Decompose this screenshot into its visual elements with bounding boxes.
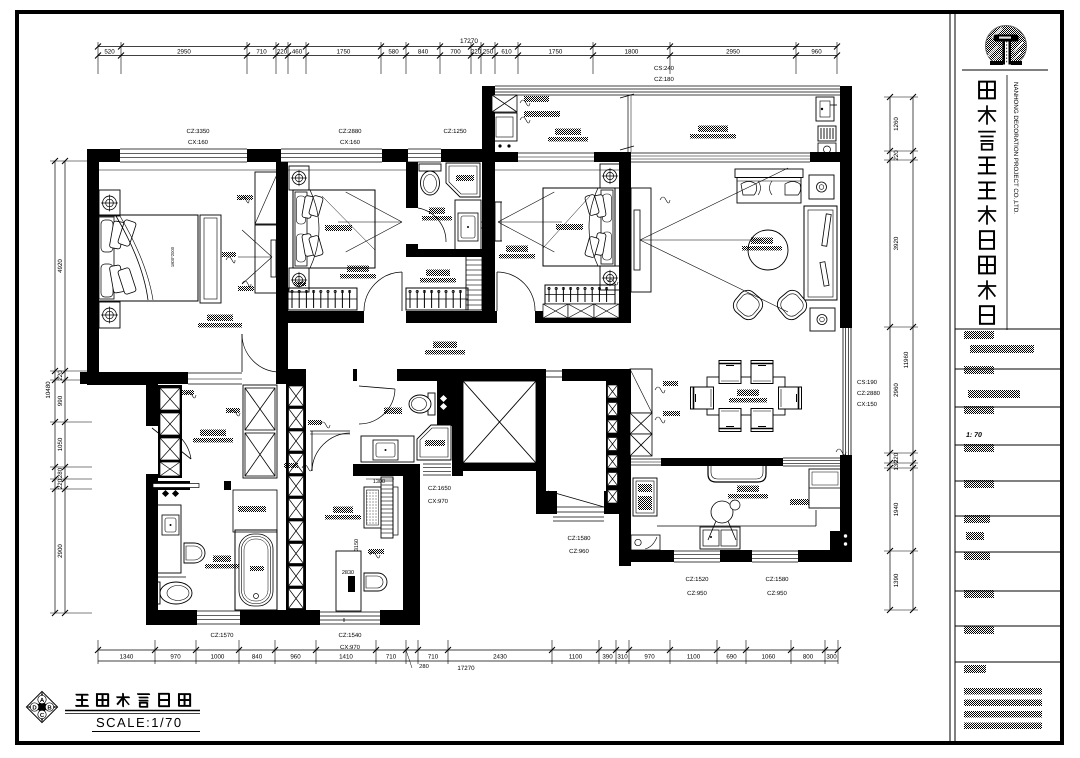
svg-text:220: 220 — [893, 150, 900, 161]
svg-text:CZ:960: CZ:960 — [569, 548, 589, 555]
svg-text:1390: 1390 — [893, 573, 900, 587]
svg-text:2430: 2430 — [493, 654, 507, 661]
svg-text:1800: 1800 — [625, 49, 639, 56]
svg-text:1940: 1940 — [893, 502, 900, 516]
svg-text:CZ:1540: CZ:1540 — [338, 632, 362, 639]
svg-text:CZ:950: CZ:950 — [767, 590, 787, 597]
svg-text:840: 840 — [252, 654, 263, 661]
svg-text:1: 70: 1: 70 — [966, 432, 982, 439]
svg-text:1000: 1000 — [211, 654, 225, 661]
svg-text:1100: 1100 — [569, 654, 583, 661]
svg-text:1410: 1410 — [339, 654, 353, 661]
svg-text:CZ:1250: CZ:1250 — [443, 128, 467, 135]
svg-text:CZ:1570: CZ:1570 — [210, 632, 234, 639]
svg-text:700: 700 — [450, 49, 461, 56]
svg-text:CZ:3350: CZ:3350 — [186, 128, 210, 135]
svg-text:310: 310 — [617, 654, 628, 661]
svg-text:1750: 1750 — [337, 49, 351, 56]
svg-text:CZ:180: CZ:180 — [654, 76, 674, 83]
svg-text:CX:150: CX:150 — [857, 401, 878, 408]
svg-text:520: 520 — [104, 49, 115, 56]
svg-text:CZ:1650: CZ:1650 — [428, 485, 452, 492]
svg-text:2960: 2960 — [893, 383, 900, 397]
svg-text:CZ:950: CZ:950 — [687, 590, 707, 597]
svg-text:4920: 4920 — [57, 259, 64, 273]
svg-text:220: 220 — [277, 49, 288, 56]
svg-text:SCALE:1/70: SCALE:1/70 — [96, 715, 183, 730]
svg-text:1100: 1100 — [687, 654, 701, 661]
svg-text:CX:970: CX:970 — [340, 644, 361, 651]
svg-text:NANHONG DECORATION PROJECT CO.: NANHONG DECORATION PROJECT CO.,LTD. — [1012, 82, 1019, 214]
svg-text:CZ:1580: CZ:1580 — [567, 535, 591, 542]
svg-text:710: 710 — [256, 49, 267, 56]
svg-text:960: 960 — [811, 49, 822, 56]
svg-text:CZ:1580: CZ:1580 — [765, 576, 789, 583]
svg-text:970: 970 — [644, 654, 655, 661]
svg-text:CX:970: CX:970 — [428, 498, 449, 505]
svg-text:CZ:1520: CZ:1520 — [685, 576, 709, 583]
svg-text:17270: 17270 — [460, 38, 478, 45]
svg-text:1340: 1340 — [120, 654, 134, 661]
svg-text:CX:160: CX:160 — [188, 139, 209, 146]
svg-text:A: A — [40, 697, 45, 704]
svg-text:B: B — [47, 705, 52, 712]
svg-text:CX:160: CX:160 — [340, 139, 361, 146]
svg-text:11960: 11960 — [903, 351, 910, 368]
svg-text:220: 220 — [57, 370, 64, 381]
svg-text:220: 220 — [57, 478, 64, 489]
svg-text:CZ:2880: CZ:2880 — [338, 128, 362, 135]
svg-text:CS:240: CS:240 — [654, 65, 675, 72]
svg-text:3920: 3920 — [893, 236, 900, 250]
svg-text:990: 990 — [57, 395, 64, 406]
svg-text:10480: 10480 — [45, 381, 52, 399]
svg-text:1050: 1050 — [57, 437, 64, 451]
svg-text:390: 390 — [602, 654, 613, 661]
svg-text:17270: 17270 — [457, 665, 475, 672]
svg-text:1060: 1060 — [762, 654, 776, 661]
svg-text:970: 970 — [170, 654, 181, 661]
svg-text:2900: 2900 — [57, 544, 64, 558]
svg-text:1800*2000: 1800*2000 — [170, 246, 175, 267]
svg-text:710: 710 — [428, 654, 439, 661]
svg-text:2950: 2950 — [726, 49, 740, 56]
svg-text:130: 130 — [893, 460, 900, 471]
svg-text:610: 610 — [501, 49, 512, 56]
svg-text:2950: 2950 — [177, 49, 191, 56]
svg-text:1260: 1260 — [893, 117, 900, 131]
svg-text:1750: 1750 — [549, 49, 563, 56]
svg-text:960: 960 — [290, 654, 301, 661]
svg-text:300: 300 — [826, 654, 837, 661]
svg-text:D: D — [32, 705, 37, 712]
svg-text:710: 710 — [386, 654, 397, 661]
svg-text:1300: 1300 — [373, 479, 385, 485]
svg-text:C: C — [40, 712, 45, 719]
svg-text:CZ:2880: CZ:2880 — [857, 390, 881, 397]
svg-text:690: 690 — [726, 654, 737, 661]
svg-text:280: 280 — [419, 663, 429, 670]
svg-text:460: 460 — [292, 49, 303, 56]
svg-text:800: 800 — [803, 654, 814, 661]
svg-text:2830: 2830 — [342, 570, 354, 576]
svg-text:220: 220 — [471, 49, 482, 56]
svg-text:840: 840 — [418, 49, 429, 56]
svg-text:CS:190: CS:190 — [857, 379, 878, 386]
svg-text:580: 580 — [388, 49, 399, 56]
svg-text:3150: 3150 — [354, 539, 360, 551]
